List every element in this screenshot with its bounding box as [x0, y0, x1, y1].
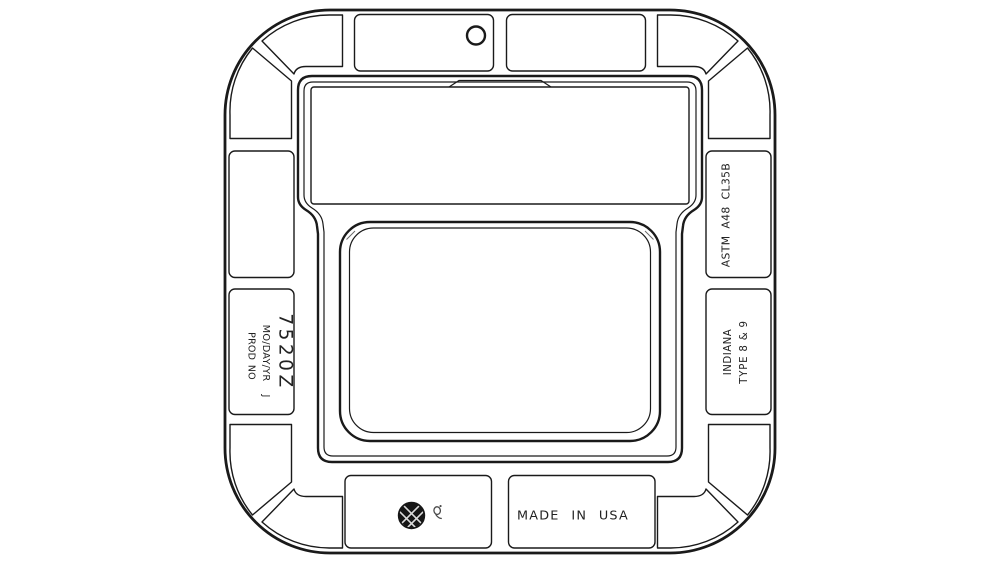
top-left-corner-panel-b — [262, 15, 343, 74]
opening-inner-line — [350, 228, 651, 433]
top-right-flange-panel — [507, 15, 646, 72]
bottom-left-corner-panel-b — [262, 489, 343, 548]
casting-frame-drawing: 7520Z MO/DAY/YR J PROD NO ASTM A48 CL35B… — [0, 0, 1000, 567]
bottom-right-corner-panel-b — [658, 489, 739, 548]
left-upper-flange-panel — [229, 151, 294, 278]
top-right-corner-panel-b — [658, 15, 739, 74]
drawing-canvas: 7520Z MO/DAY/YR J PROD NO ASTM A48 CL35B… — [0, 0, 1000, 567]
opening-outer-line — [340, 222, 660, 441]
inspector-initial-label: J — [260, 394, 271, 398]
right-upper-flange-panel — [706, 151, 771, 278]
origin-label: MADE IN USA — [517, 508, 629, 523]
material-spec-label: ASTM A48 CL35B — [719, 163, 732, 267]
state-label: INDIANA — [723, 329, 734, 376]
type-label: TYPE 8 & 9 — [739, 320, 750, 385]
cover-plate-blank — [311, 87, 689, 204]
date-code-label: MO/DAY/YR — [260, 325, 271, 382]
part-number-label: 7520Z — [275, 313, 296, 390]
prod-no-label: PROD NO — [246, 332, 257, 380]
